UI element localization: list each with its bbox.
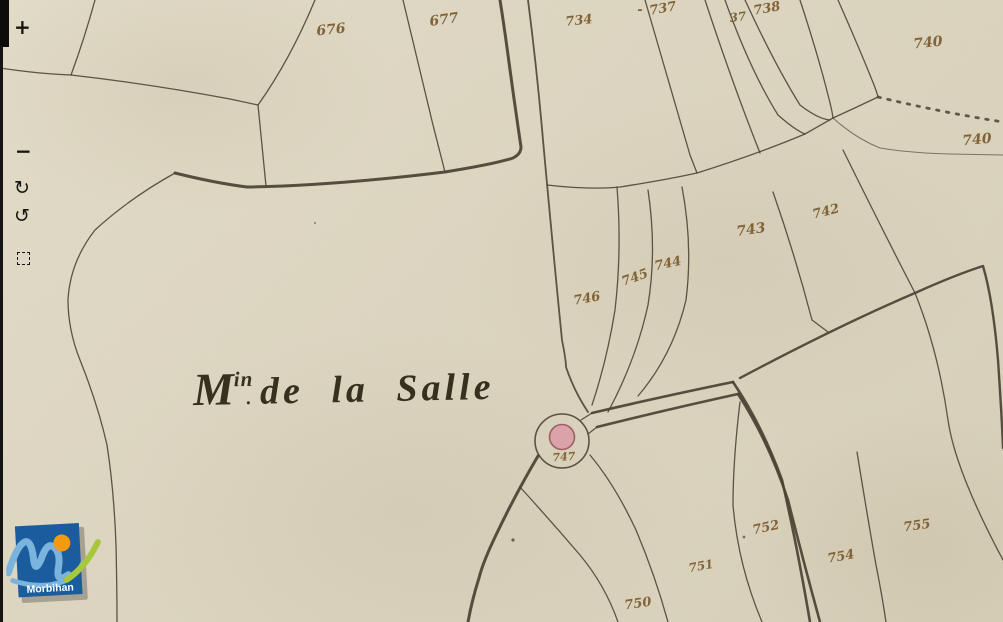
place-name-initial: M [192, 363, 234, 415]
zoom-out-button[interactable]: − [15, 141, 32, 161]
parcel-number-label: 746 [572, 289, 601, 308]
scan-edge [0, 0, 3, 622]
rotate-ccw-button[interactable]: ↺ [14, 207, 30, 226]
parcel-number-label: 742 [811, 201, 841, 222]
parcel-number-label: 745 [620, 266, 651, 289]
morbihan-logo: Morbihan [3, 509, 120, 621]
logo-wordmark: Morbihan [26, 581, 74, 595]
parcel-number-label: 751 [687, 557, 714, 575]
place-name-label: Min.de la Salle [192, 357, 495, 416]
rotate-cw-button[interactable]: ↻ [14, 179, 30, 198]
parcel-number-label: 744 [653, 254, 683, 274]
parcel-number-label: 734 [565, 12, 594, 30]
parcel-number-label: 750 [624, 595, 653, 614]
map-canvas[interactable]: 676677734-737377387407407427437447457467… [0, 0, 1003, 622]
parcel-number-label: 743 [735, 220, 766, 240]
scan-corner [0, 0, 9, 47]
parcel-number-label: 677 [428, 10, 459, 30]
parcel-number-label: 738 [752, 0, 781, 19]
parcel-number-label: 740 [913, 34, 944, 53]
parcel-number-label: - [637, 3, 642, 18]
parcel-labels-layer: 676677734-737377387407407427437447457467… [0, 0, 1003, 622]
parcel-number-label: 37 [729, 9, 747, 25]
zoom-in-button[interactable]: + [14, 17, 31, 37]
parcel-number-label: 747 [552, 450, 576, 465]
place-name-separator: . [245, 381, 252, 410]
parcel-number-label: 752 [751, 518, 781, 538]
parcel-number-label: 754 [826, 547, 855, 566]
place-name-rest: de la Salle [260, 366, 495, 413]
fullscreen-button[interactable] [17, 252, 30, 265]
parcel-number-label: 737 [648, 0, 677, 19]
parcel-number-label: 740 [962, 131, 993, 149]
parcel-number-label: 676 [316, 21, 347, 40]
parcel-number-label: 755 [903, 517, 932, 536]
cadastral-map-viewer: 676677734-737377387407407427437447457467… [0, 0, 1003, 622]
